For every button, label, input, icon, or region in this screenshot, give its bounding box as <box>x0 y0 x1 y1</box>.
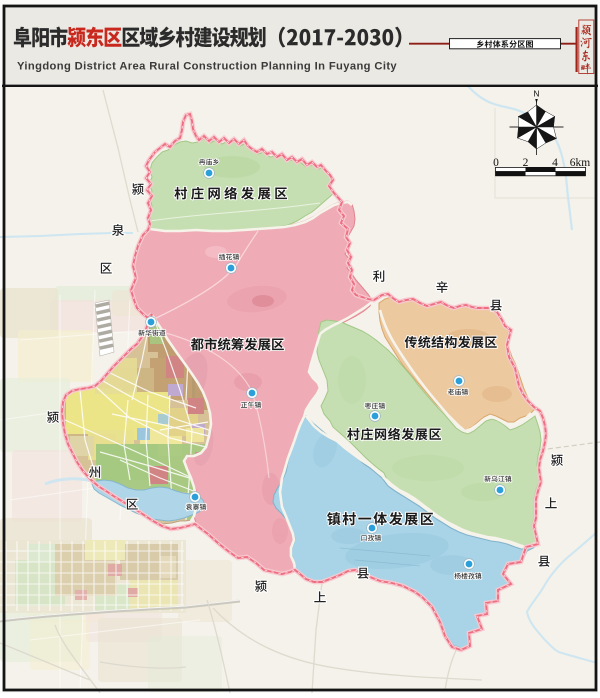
svg-text:N: N <box>533 89 539 99</box>
svg-text:Yingdong District Area Rural C: Yingdong District Area Rural Constructio… <box>17 60 397 72</box>
